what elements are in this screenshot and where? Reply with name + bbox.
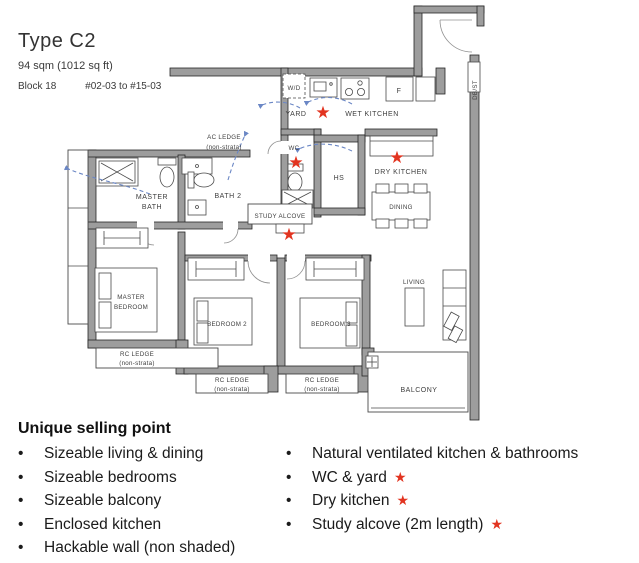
label-ac-ledge-nonstrata: (non-strata) <box>206 144 242 151</box>
label-dbst: DB/ST <box>472 80 479 100</box>
floorplan-page: Type C2 94 sqm (1012 sq ft) Block 18 #02… <box>0 0 639 563</box>
label-master-bath-2: BATH <box>142 204 162 211</box>
wc-door-arc <box>268 141 281 154</box>
list-item: • Sizeable bedrooms <box>18 466 286 490</box>
list-item: • Sizeable living & dining <box>18 442 286 466</box>
selling-point-text: Sizeable living & dining <box>44 442 203 466</box>
selling-point-text: Natural ventilated kitchen & bathrooms <box>312 442 578 466</box>
list-item: • Hackable wall (non shaded) <box>18 536 286 560</box>
door-opening <box>223 221 238 230</box>
stove-fixture <box>341 78 369 99</box>
label-wd: W/D <box>288 85 301 92</box>
label-living: LIVING <box>403 279 425 286</box>
star-study-alcove-icon: ★ <box>281 225 296 245</box>
bullet-icon: • <box>18 466 44 490</box>
wall <box>470 55 479 420</box>
wall <box>414 6 484 13</box>
pillow <box>99 273 111 299</box>
label-dining: DINING <box>389 204 412 211</box>
bedroom3-door-arc <box>287 261 305 279</box>
wall <box>477 6 484 26</box>
selling-point-text: Sizeable balcony <box>44 489 161 513</box>
selling-points-columns: • Sizeable living & dining • Sizeable be… <box>18 442 633 560</box>
vent-arrow-icon <box>297 144 352 151</box>
bullet-icon: • <box>18 513 44 537</box>
label-study-alcove: STUDY ALCOVE <box>255 213 306 220</box>
label-master-bath-1: MASTER <box>136 194 168 201</box>
bedroom2-door-arc <box>248 261 270 283</box>
label-yard: YARD <box>286 111 307 118</box>
label-fridge: F <box>397 88 402 95</box>
bullet-icon: • <box>286 442 312 466</box>
balcony-outline <box>368 352 468 412</box>
wall-hs-top <box>314 135 365 142</box>
toilet-fixture <box>160 167 174 187</box>
list-item: • Study alcove (2m length) ★ <box>286 513 633 537</box>
pillow <box>99 302 111 328</box>
star-yard-icon: ★ <box>315 103 330 123</box>
label-wc: WC <box>289 145 300 152</box>
selling-point-text: Study alcove (2m length) <box>312 513 483 537</box>
star-icon: ★ <box>490 513 503 537</box>
dining-chair <box>395 184 408 193</box>
sink-basin <box>314 82 326 91</box>
toilet-fixture <box>288 173 302 191</box>
sink-tap <box>330 83 333 86</box>
selling-point-text: Enclosed kitchen <box>44 513 161 537</box>
bullet-icon: • <box>286 489 312 513</box>
selling-point-text: Hackable wall (non shaded) <box>44 536 235 560</box>
floor-plan: W/D YARD WET KITCHEN F DB/ST AC LEDGE (n… <box>0 0 639 448</box>
label-bath2: BATH 2 <box>215 193 242 200</box>
door-opening <box>248 254 270 262</box>
dining-chair <box>414 219 427 228</box>
bullet-icon: • <box>286 513 312 537</box>
wall <box>88 340 184 348</box>
wall <box>178 232 185 344</box>
list-item: • Natural ventilated kitchen & bathrooms <box>286 442 633 466</box>
label-hs: HS <box>334 175 345 182</box>
wall <box>277 258 285 374</box>
label-master-bedroom-1: MASTER <box>117 294 145 301</box>
list-item: • Sizeable balcony <box>18 489 286 513</box>
dining-chair <box>376 219 389 228</box>
kitchen-counter <box>416 77 435 101</box>
toilet-fixture <box>194 173 214 187</box>
label-bedroom2: BEDROOM 2 <box>207 321 247 328</box>
entry-door-arc <box>440 20 472 52</box>
label-rc-ledge-3b: (non-strata) <box>304 386 340 393</box>
label-bedroom3: BEDROOM 3 <box>311 321 351 328</box>
toilet-tank <box>158 158 176 165</box>
label-wet-kitchen: WET KITCHEN <box>345 111 399 118</box>
door-opening <box>287 254 305 262</box>
vent-arrow-icon <box>260 102 300 108</box>
bullet-icon: • <box>18 489 44 513</box>
wall <box>414 6 422 76</box>
star-wc-icon: ★ <box>288 153 303 173</box>
label-rc-ledge-1: RC LEDGE <box>120 351 154 358</box>
bullet-icon: • <box>18 536 44 560</box>
wall <box>365 129 437 136</box>
label-rc-ledge-1b: (non-strata) <box>119 360 155 367</box>
label-rc-ledge-2: RC LEDGE <box>215 377 249 384</box>
pillow <box>346 302 357 323</box>
pillow <box>197 301 208 321</box>
selling-points-section: Unique selling point • Sizeable living &… <box>18 420 633 560</box>
wall-hs-bottom <box>314 208 365 215</box>
wall-hs-right <box>358 135 365 215</box>
label-dry-kitchen: DRY KITCHEN <box>375 169 428 176</box>
list-item: • Dry kitchen ★ <box>286 489 633 513</box>
selling-points-left-list: • Sizeable living & dining • Sizeable be… <box>18 442 286 560</box>
label-rc-ledge-3: RC LEDGE <box>305 377 339 384</box>
dining-chair <box>414 184 427 193</box>
label-rc-ledge-2b: (non-strata) <box>214 386 250 393</box>
ac-ledge-side <box>68 150 88 324</box>
wall <box>88 150 250 157</box>
label-balcony: BALCONY <box>401 387 438 394</box>
star-icon: ★ <box>397 489 410 513</box>
vanity-tap <box>196 206 199 209</box>
list-item: • WC & yard ★ <box>286 466 633 490</box>
label-ac-ledge: AC LEDGE <box>207 134 241 141</box>
selling-points-right-list: • Natural ventilated kitchen & bathrooms… <box>286 442 633 560</box>
list-item: • Enclosed kitchen <box>18 513 286 537</box>
dining-chair <box>395 219 408 228</box>
selling-points-title: Unique selling point <box>18 420 633 438</box>
star-dry-kitchen-icon: ★ <box>389 148 404 168</box>
vanity-tap <box>196 165 199 168</box>
bath2-door-arc <box>224 229 238 243</box>
selling-point-text: Dry kitchen <box>312 489 390 513</box>
selling-point-text: WC & yard <box>312 466 387 490</box>
star-icon: ★ <box>394 466 407 490</box>
bullet-icon: • <box>286 466 312 490</box>
selling-point-text: Sizeable bedrooms <box>44 466 177 490</box>
label-master-bedroom-2: BEDROOM <box>114 304 148 311</box>
dining-chair <box>376 184 389 193</box>
rc-ledge-box <box>96 348 218 368</box>
wall <box>436 68 445 94</box>
toilet-tank <box>188 172 194 188</box>
pillow <box>346 325 357 346</box>
tv-console <box>405 288 424 326</box>
bullet-icon: • <box>18 442 44 466</box>
